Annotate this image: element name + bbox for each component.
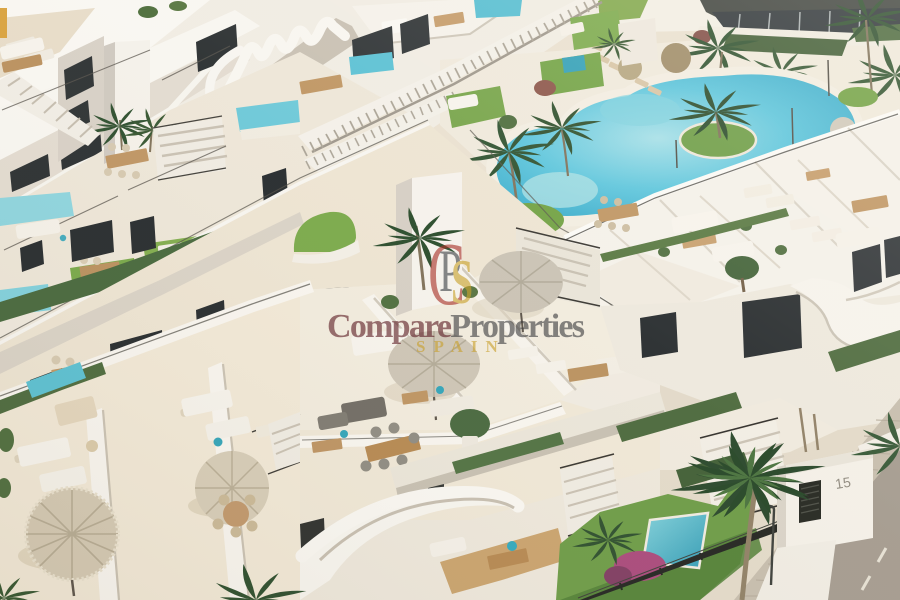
svg-text:S: S bbox=[451, 247, 473, 318]
svg-text:SPAIN: SPAIN bbox=[416, 337, 506, 356]
